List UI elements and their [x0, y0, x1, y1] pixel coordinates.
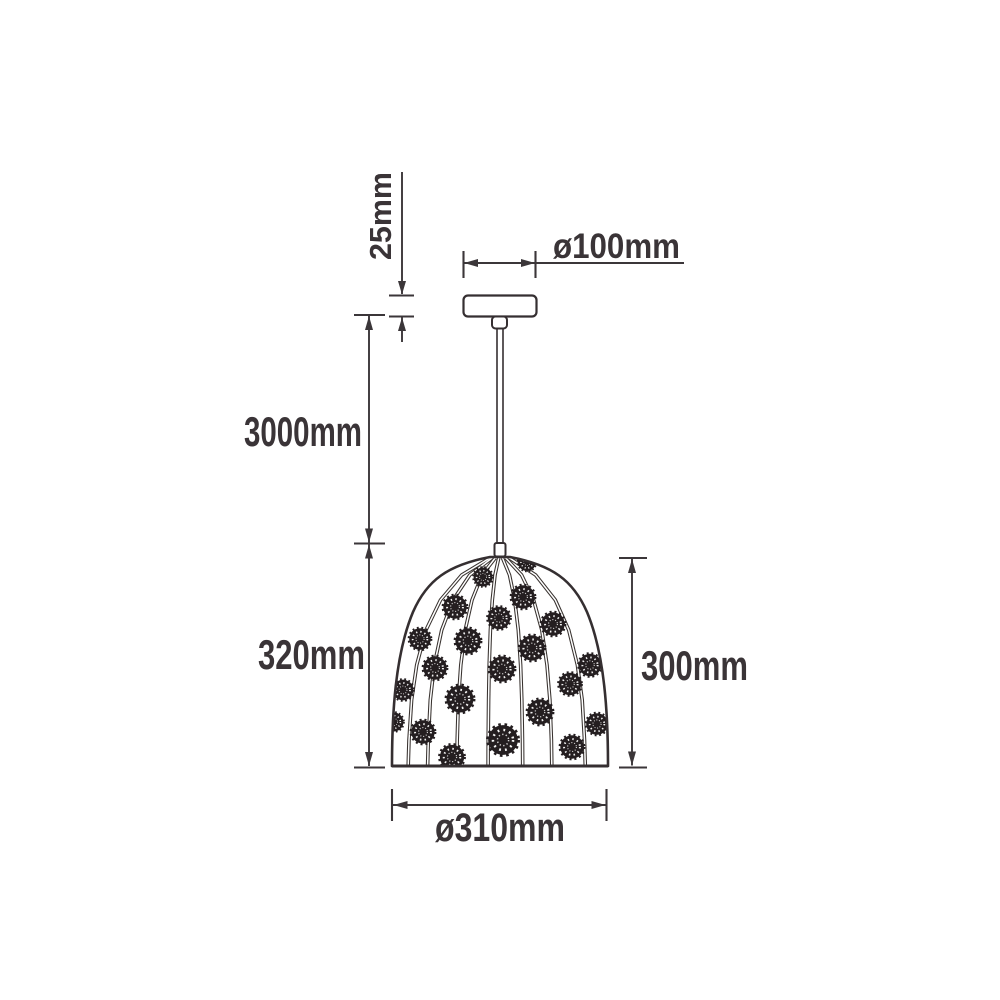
medallion [489, 656, 514, 681]
dimension-arrow [398, 318, 406, 332]
dim-canopy-height: 25mm [363, 172, 414, 342]
dim-shade-diameter: ø310mm [392, 789, 607, 850]
medallion [586, 713, 608, 735]
medallion [560, 735, 583, 758]
dim-shade-diameter-label: ø310mm [435, 806, 565, 850]
medallion [474, 568, 493, 587]
dimension-arrow [628, 559, 636, 573]
dimension-arrow [398, 281, 406, 295]
dimension-arrow [365, 529, 373, 543]
medallion [443, 595, 466, 618]
medallion [423, 656, 446, 679]
dim-suspension-length-label: 3000mm [244, 408, 362, 455]
medallion [411, 720, 434, 743]
shade-top-connector [495, 543, 506, 557]
dimension-arrow [365, 316, 373, 330]
dimension-arrow [592, 801, 606, 809]
medallion [519, 635, 544, 660]
dimension-arrow [464, 259, 478, 267]
medallion [455, 628, 480, 653]
medallion [559, 673, 582, 696]
medallion [511, 585, 534, 608]
technical-drawing-page: 25mm ø100mm 3000mm 320mm [0, 0, 1000, 1000]
dimension-arrow [365, 752, 373, 766]
dimension-arrow [394, 801, 408, 809]
ceiling-canopy [464, 296, 537, 317]
medallion [541, 612, 564, 635]
dim-drop-section-label: 320mm [258, 631, 365, 678]
medallion [488, 725, 518, 755]
medallion [488, 607, 511, 630]
suspension-cable [497, 328, 503, 545]
medallion [527, 699, 552, 724]
dimension-arrow [628, 752, 636, 766]
dim-canopy-height-label: 25mm [363, 172, 398, 260]
fixture [385, 296, 608, 770]
dim-shade-height-label: 300mm [641, 642, 748, 689]
dim-suspension-length: 3000mm [244, 315, 385, 544]
medallion [447, 686, 474, 713]
dim-shade-height: 300mm [619, 558, 748, 768]
dim-canopy-diameter-label: ø100mm [553, 227, 680, 266]
dim-drop-section: 320mm [258, 545, 385, 768]
canopy-connector [492, 317, 507, 329]
medallion [579, 654, 602, 677]
pendant-lamp-diagram: 25mm ø100mm 3000mm 320mm [0, 0, 1000, 1000]
dimension-arrow [365, 545, 373, 559]
dimension-arrow [521, 259, 535, 267]
dim-canopy-diameter: ø100mm [464, 227, 685, 278]
medallion [409, 628, 431, 650]
